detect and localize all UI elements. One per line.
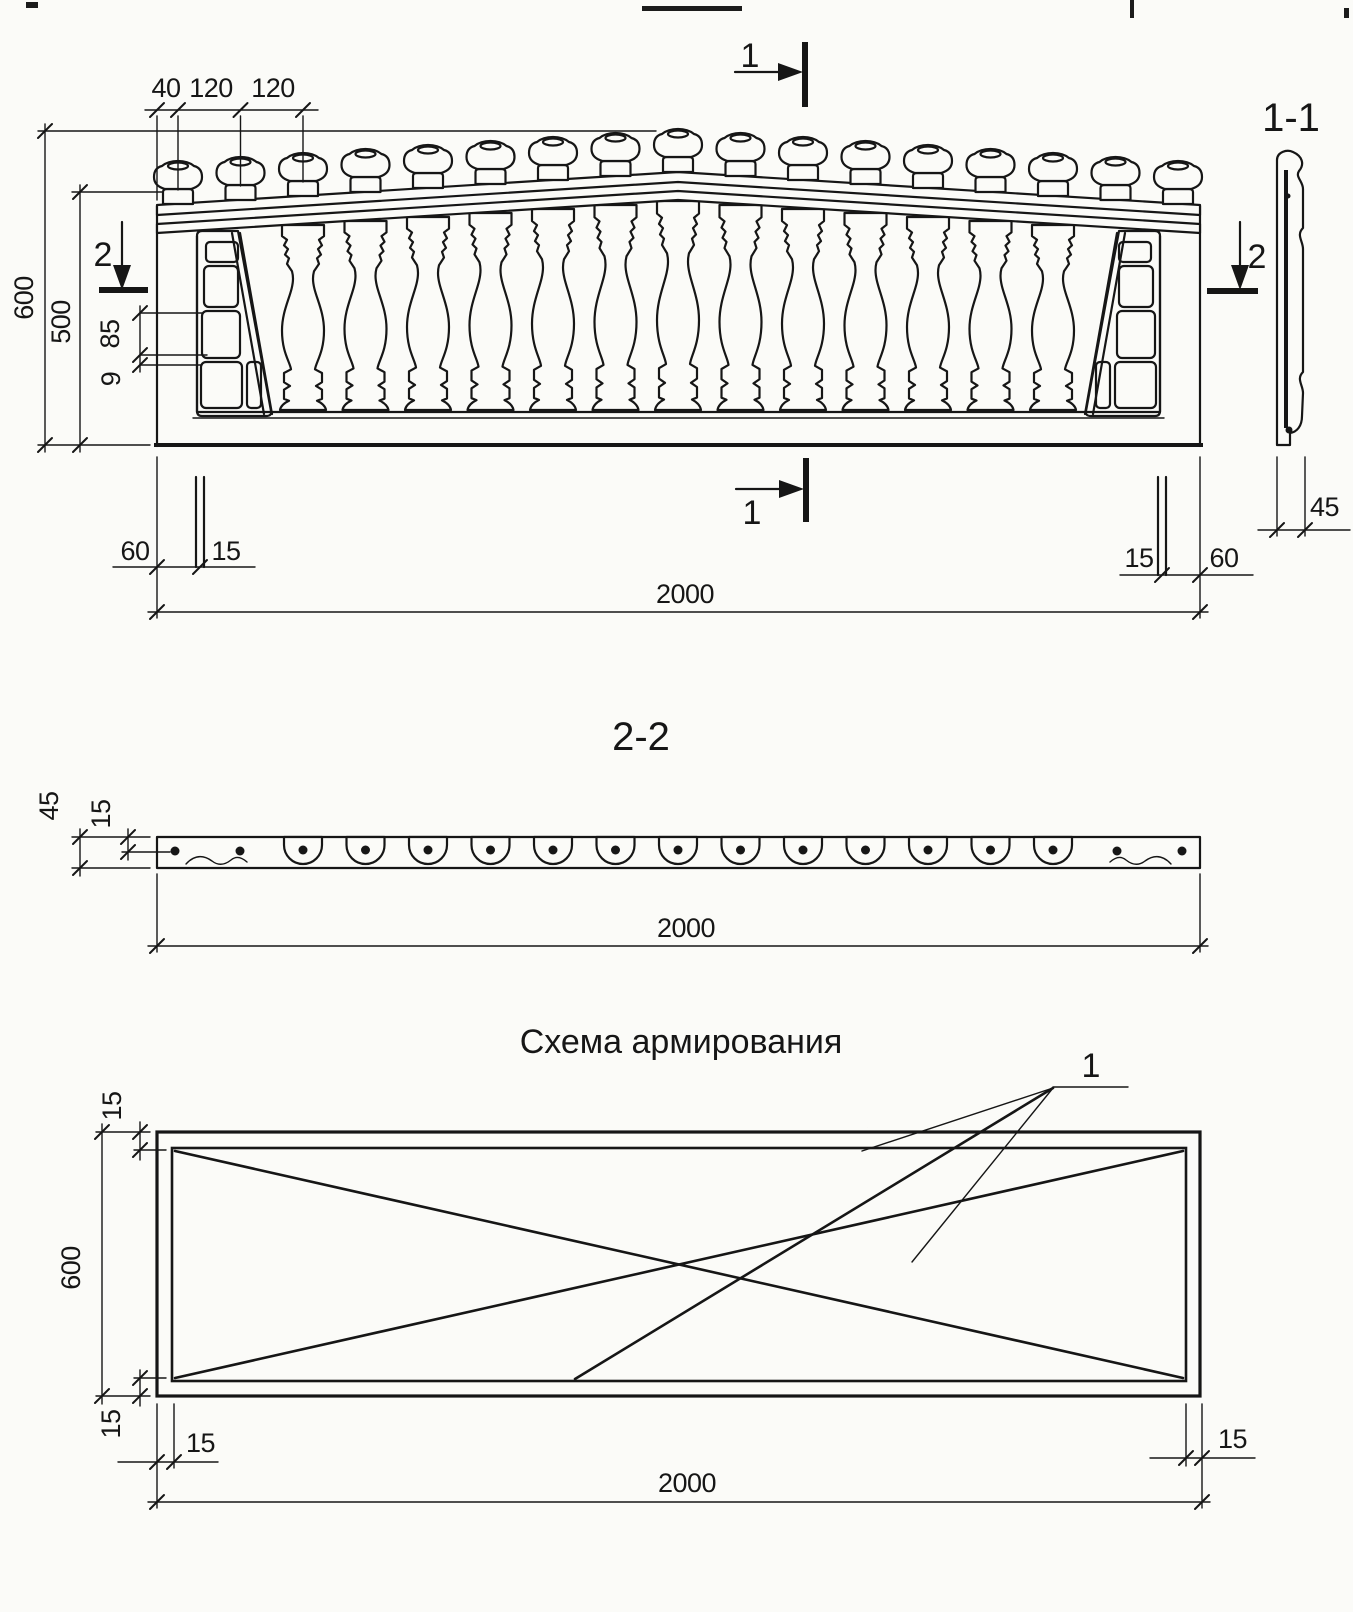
dim-120-a: 120 [189,73,233,103]
dim-15-right: 15 [1124,543,1153,573]
dim-60-left: 60 [120,536,149,566]
marker-1-top-label: 1 [741,37,760,75]
dim-2000-front: 2000 [656,579,714,609]
dim-15-section-2-2: 15 [86,799,116,828]
section-1-1-title: 1-1 [1262,96,1320,140]
dim-2000-section-2-2: 2000 [657,913,715,943]
dim-15-bottom-left: 15 [186,1428,215,1458]
dim-15-top: 15 [97,1091,127,1120]
dim-120-b: 120 [251,73,295,103]
marker-2-right-label: 2 [1248,238,1267,276]
rebar-callout-label: 1 [1082,1047,1101,1085]
dim-60-right: 60 [1209,543,1238,573]
scanned-blueprint-page: 40 120 120 600 500 85 9 1 [0,0,1353,1612]
dim-15-bottom-right: 15 [1218,1424,1247,1454]
dim-85: 85 [95,319,125,348]
dim-15-bottom: 15 [96,1409,126,1438]
dim-45-section-2-2: 45 [34,791,64,820]
fence-panel-drawing: 40 120 120 600 500 85 9 1 [0,0,1353,1612]
dim-15-left: 15 [211,536,240,566]
dim-2000-reinforcement: 2000 [658,1468,716,1498]
dim-600: 600 [9,276,39,320]
dim-9: 9 [96,372,126,387]
dim-40: 40 [151,73,180,103]
dim-45-section-1-1: 45 [1310,492,1339,522]
dim-600-reinforcement: 600 [56,1246,86,1290]
marker-1-bottom-label: 1 [743,494,762,532]
dim-500: 500 [46,300,76,344]
reinforcement-title: Схема армирования [520,1023,843,1061]
marker-2-left-label: 2 [94,236,113,274]
section-2-2-title: 2-2 [612,715,670,759]
